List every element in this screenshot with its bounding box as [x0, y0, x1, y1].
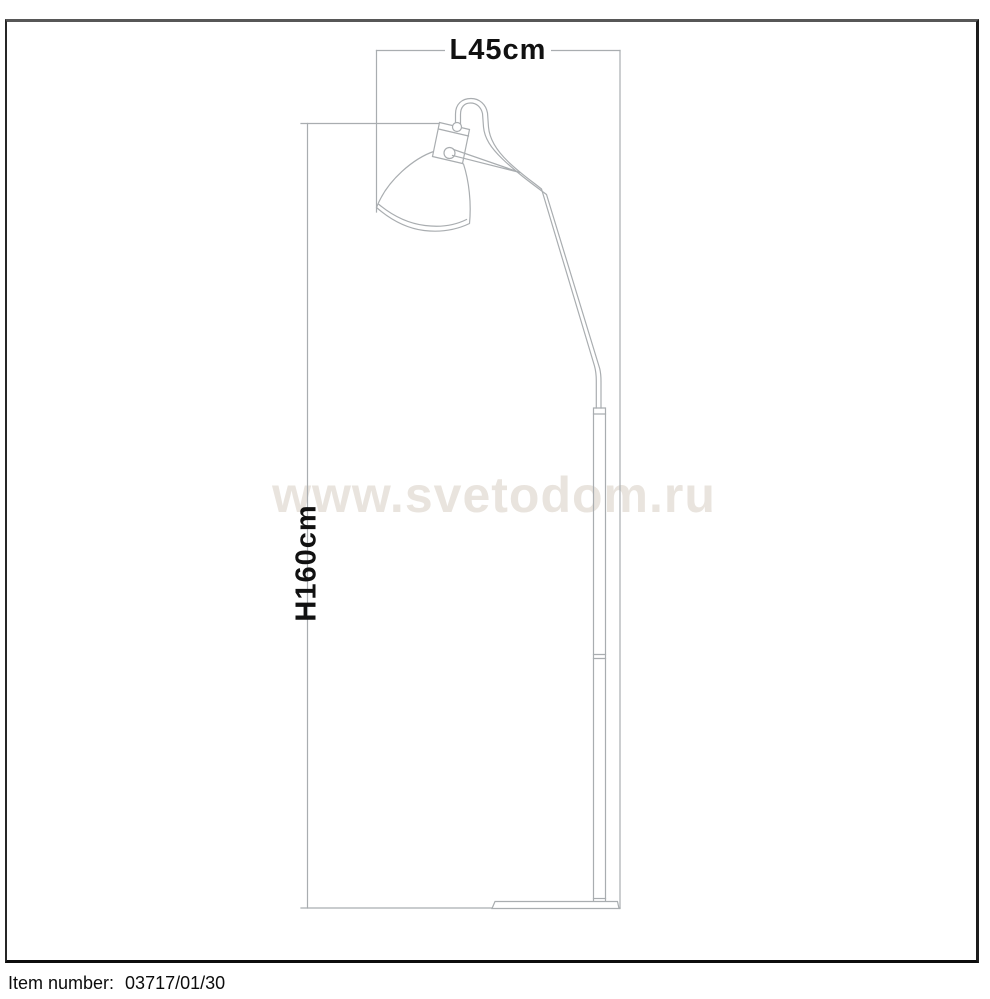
lamp-top-knob [453, 123, 462, 132]
floor-lamp-drawing [0, 0, 990, 999]
item-number-label: Item number: [8, 971, 114, 995]
dim-height-label-text: H160cm [291, 504, 324, 621]
lamp-shade [377, 151, 471, 231]
lamp-drawing-group [301, 51, 620, 909]
dim-width-label-text: L45cm [445, 34, 552, 66]
item-number-row: Item number: 03717/01/30 [8, 971, 225, 995]
lamp-base [492, 902, 619, 909]
item-number-value: 03717/01/30 [125, 971, 225, 995]
page: { "dimensions": { "length": { "label": "… [0, 0, 990, 999]
lamp-stem-inner [461, 103, 602, 408]
lamp-stem-outer [456, 99, 597, 409]
pole-connector [594, 408, 606, 414]
pole-mid-seam [594, 655, 606, 659]
dim-width-label: L45cm [376, 33, 620, 67]
